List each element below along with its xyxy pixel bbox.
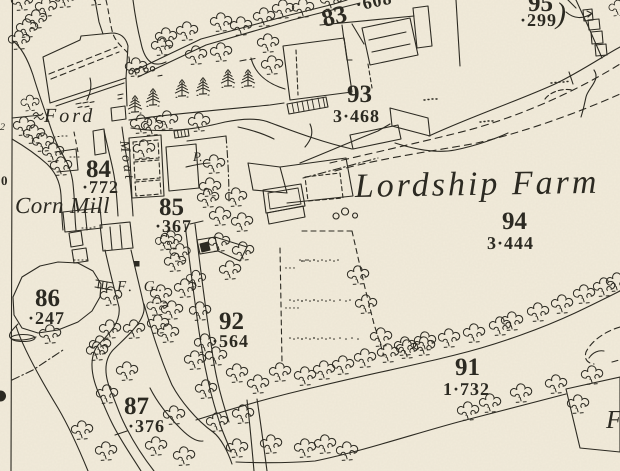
svg-text:·367: ·367 <box>155 216 192 236</box>
svg-text:F: F <box>605 405 620 434</box>
svg-text:1·732: 1·732 <box>443 379 490 399</box>
svg-text:0: 0 <box>1 173 8 188</box>
svg-text:·772: ·772 <box>82 177 119 197</box>
svg-text:·299: ·299 <box>520 10 557 30</box>
svg-text:): ) <box>554 0 566 30</box>
svg-text:·376: ·376 <box>128 416 165 436</box>
svg-text:3·468: 3·468 <box>333 106 380 126</box>
svg-text:2: 2 <box>0 122 5 133</box>
svg-text:F. G.: F. G. <box>116 279 166 295</box>
svg-text:Ford: Ford <box>43 105 95 127</box>
svg-text:P.: P. <box>192 149 203 164</box>
svg-text:91: 91 <box>455 354 480 381</box>
svg-text:93: 93 <box>347 81 372 108</box>
svg-text:Lordship Farm: Lordship Farm <box>353 164 599 205</box>
svg-text:·247: ·247 <box>28 308 65 328</box>
svg-text:·564: ·564 <box>212 331 249 351</box>
svg-text:3·444: 3·444 <box>487 233 534 253</box>
svg-text:94: 94 <box>502 208 528 235</box>
